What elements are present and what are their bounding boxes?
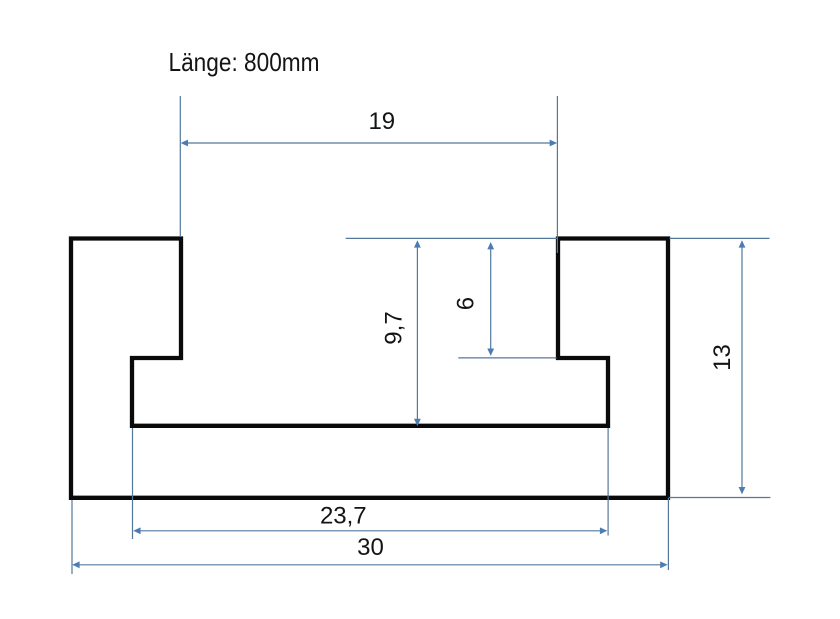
svg-text:6: 6 — [452, 297, 479, 310]
svg-text:9,7: 9,7 — [381, 311, 408, 344]
svg-text:30: 30 — [357, 534, 384, 561]
svg-text:19: 19 — [368, 108, 395, 135]
svg-text:Länge: 800mm: Länge: 800mm — [169, 47, 320, 77]
svg-text:13: 13 — [709, 344, 736, 371]
svg-text:23,7: 23,7 — [320, 502, 367, 529]
